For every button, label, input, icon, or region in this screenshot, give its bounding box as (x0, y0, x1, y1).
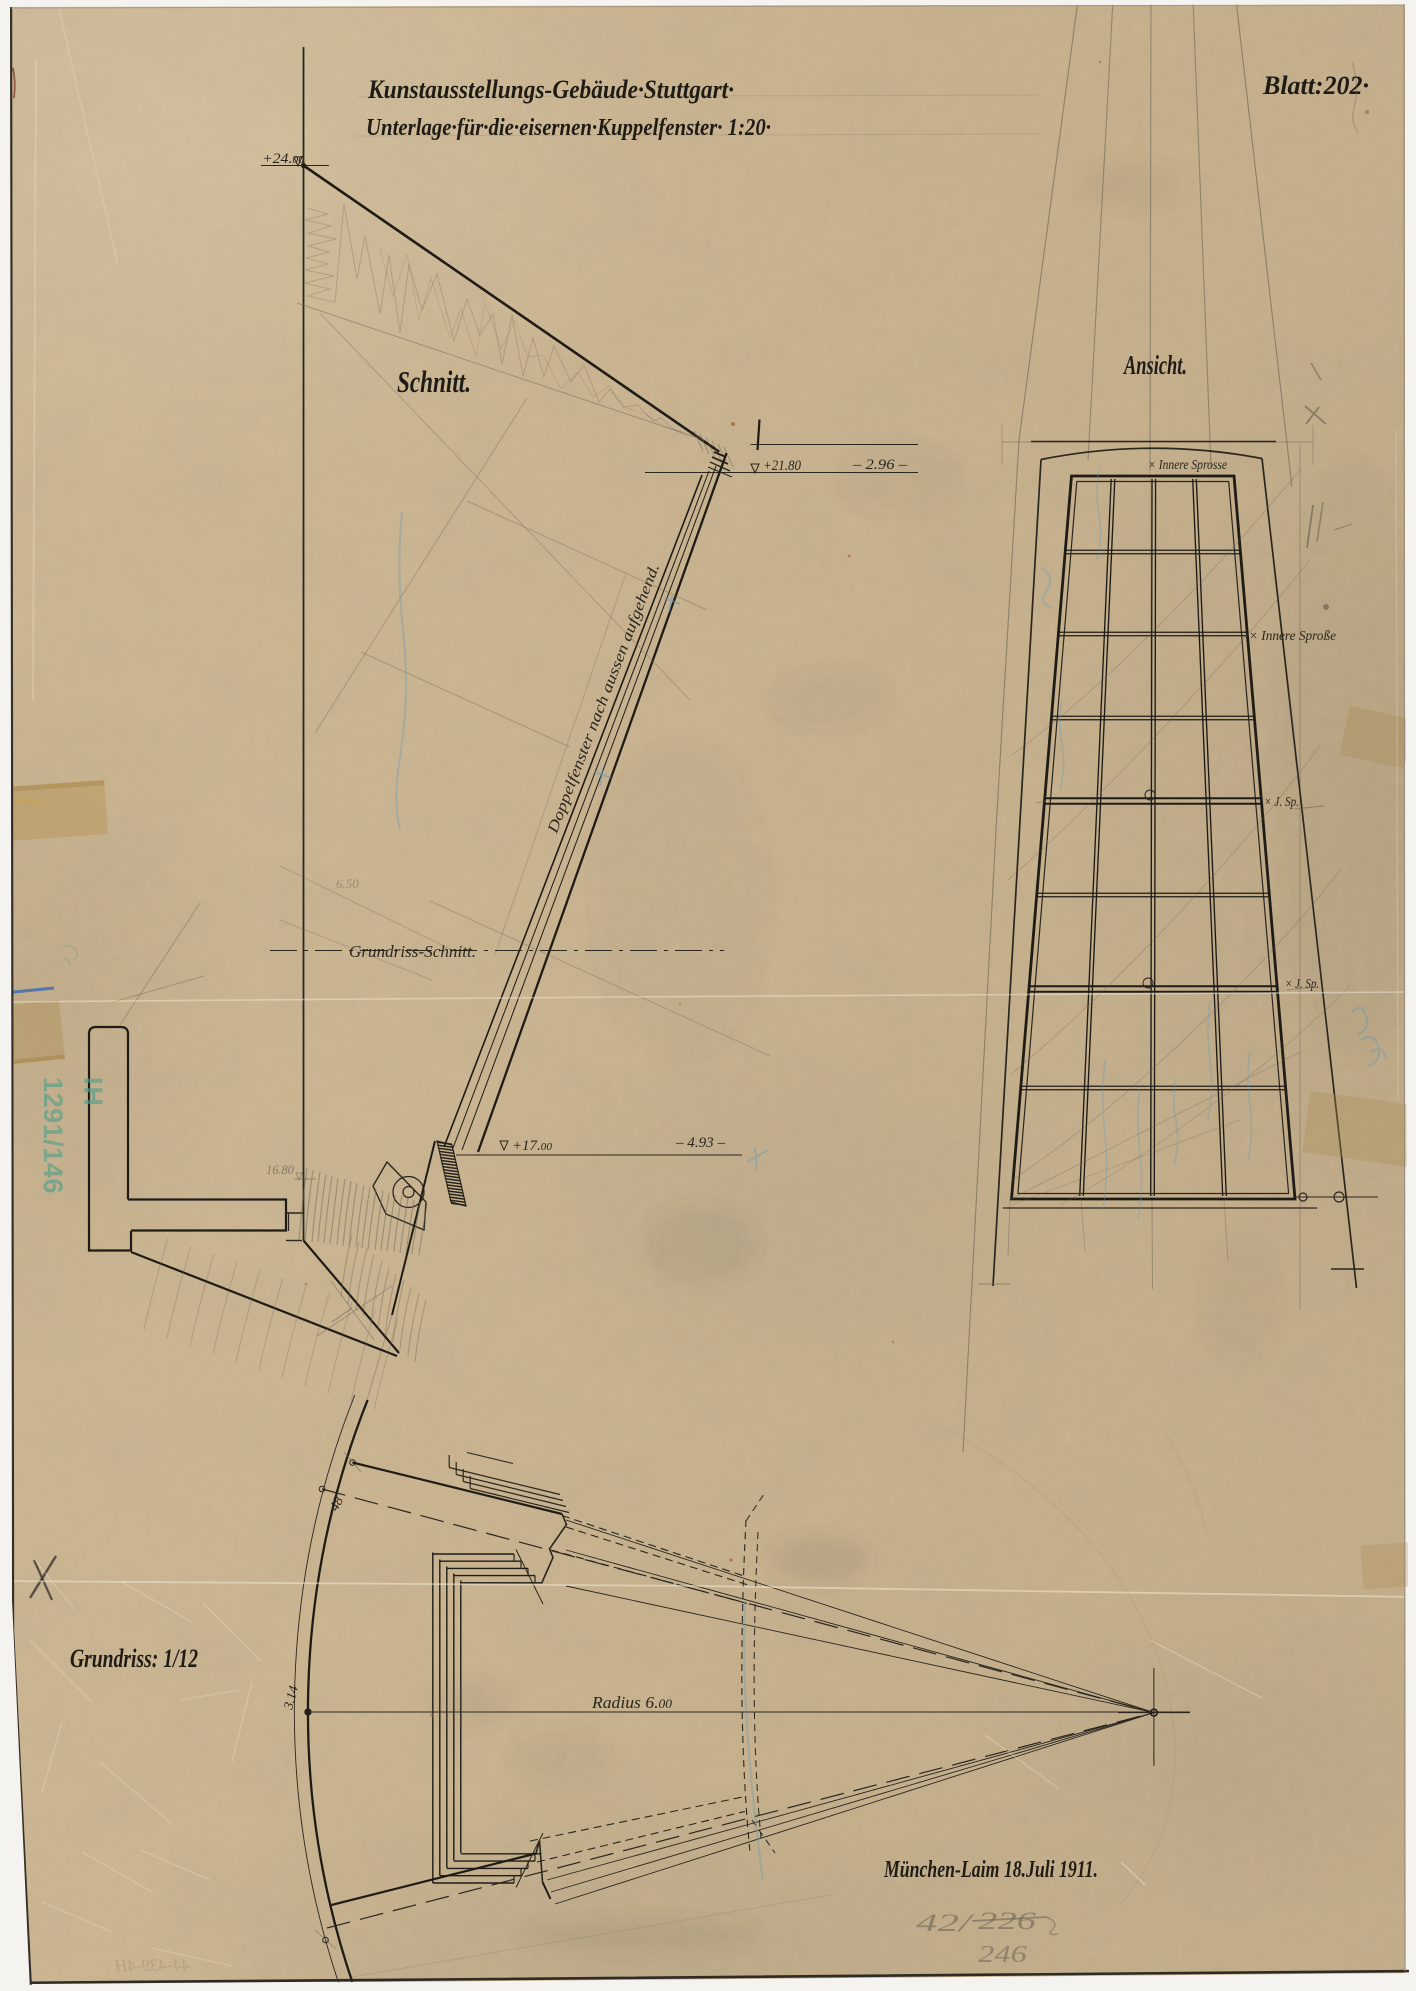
svg-text:Unterlage·für·die·eisernen·Kup: Unterlage·für·die·eisernen·Kuppelfenster… (366, 115, 771, 141)
svg-text:+24.00: +24.00 (262, 151, 305, 167)
svg-text:44-439-4H: 44-439-4H (113, 1955, 190, 1975)
svg-text:16.80: 16.80 (266, 1163, 295, 1177)
svg-text:Ansicht.: Ansicht. (1123, 350, 1187, 380)
svg-text:Kunstausstellungs-Gebäude·Stut: Kunstausstellungs-Gebäude·Stuttgart· (367, 75, 734, 104)
svg-text:+17.00: +17.00 (512, 1138, 553, 1154)
svg-text:Blatt:202·: Blatt:202· (1262, 71, 1369, 100)
svg-text:6.50: 6.50 (336, 876, 359, 891)
svg-text:+21.80: +21.80 (763, 458, 802, 474)
svg-text:Grundriss: 1/12: Grundriss: 1/12 (70, 1644, 198, 1673)
svg-text:246: 246 (978, 1942, 1027, 1968)
svg-text:– 4.93 –: – 4.93 – (675, 1135, 726, 1151)
svg-text:1291/146: 1291/146 (38, 1077, 68, 1194)
svg-text:Grundriss-Schnitt.: Grundriss-Schnitt. (349, 942, 476, 961)
svg-text:226: 226 (978, 1908, 1037, 1935)
svg-text:München-Laim 18.Juli 1911.: München-Laim 18.Juli 1911. (883, 1857, 1098, 1883)
svg-text:Radius 6.00: Radius 6.00 (591, 1693, 673, 1712)
svg-text:42/: 42/ (916, 1910, 975, 1937)
svg-text:IH: IH (78, 1077, 108, 1108)
svg-text:Schnitt.: Schnitt. (397, 364, 471, 399)
svg-text:× Innere Sprosse: × Innere Sprosse (1148, 457, 1227, 472)
